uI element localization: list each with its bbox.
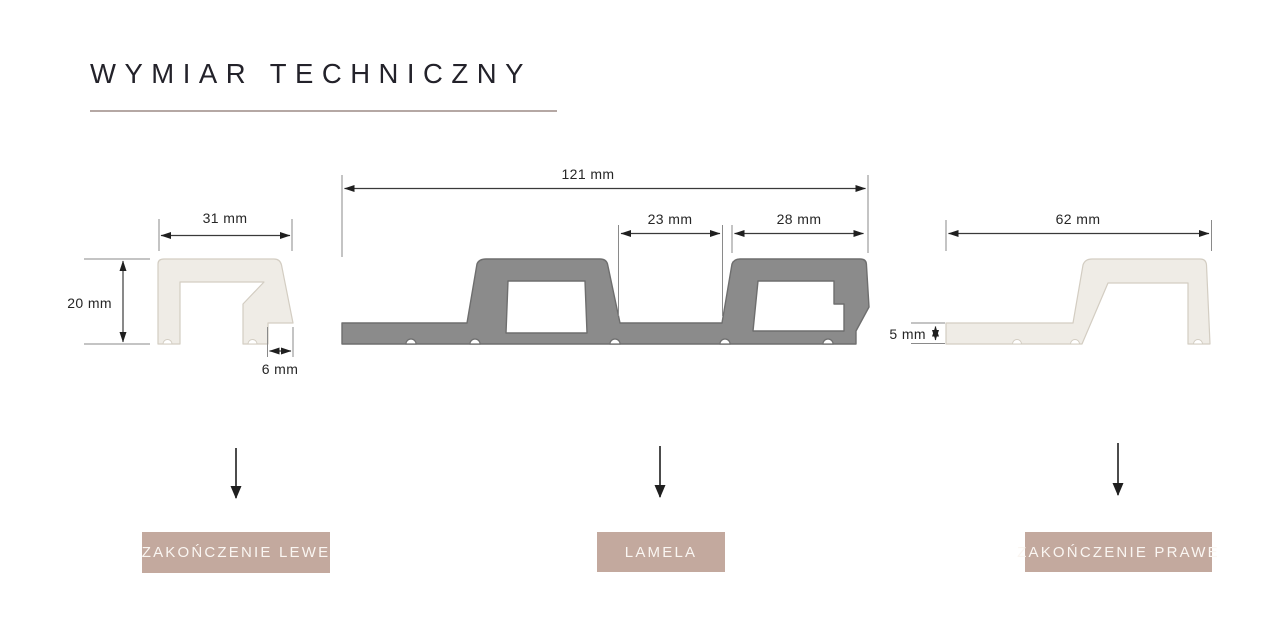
screw-notch (610, 339, 620, 344)
part-label-text: ZAKOŃCZENIE LEWE (142, 544, 331, 561)
screw-notch (823, 339, 833, 344)
screw-notch (406, 339, 416, 344)
hollow-chamber-with-clip-groove (753, 281, 844, 331)
left-endcap-profile-shape (158, 259, 293, 344)
dim-label-23mm: 23 mm (605, 211, 735, 227)
part-label-text: ZAKOŃCZENIE PRAWE (1017, 544, 1220, 561)
screw-notch (1071, 340, 1080, 345)
part-label-text: LAMELA (625, 544, 697, 561)
dim-label-62mm: 62 mm (1013, 211, 1143, 227)
dim-label-28mm: 28 mm (734, 211, 864, 227)
dim-label-31mm: 31 mm (160, 210, 290, 226)
pointer-arrows (236, 443, 1118, 498)
dim-label-6mm: 6 mm (250, 361, 310, 377)
screw-notch (720, 339, 730, 344)
part-label-lamela: LAMELA (597, 532, 725, 572)
screw-notch (248, 340, 257, 345)
technical-dimensions-page: WYMIAR TECHNICZNY (0, 0, 1280, 638)
dim-label-20mm: 20 mm (50, 295, 112, 311)
lamela-profile-shape (342, 259, 869, 344)
dim-label-5mm: 5 mm (870, 326, 926, 342)
screw-notch (1013, 340, 1022, 345)
dim-label-121mm: 121 mm (523, 166, 653, 182)
part-label-left-endcap: ZAKOŃCZENIE LEWE (142, 532, 330, 573)
screw-notch (470, 339, 480, 344)
screw-notch (1194, 340, 1203, 345)
hollow-chamber (506, 281, 587, 333)
part-label-right-endcap: ZAKOŃCZENIE PRAWE (1025, 532, 1212, 572)
right-endcap-profile-shape (946, 259, 1210, 344)
screw-notch (163, 340, 172, 345)
